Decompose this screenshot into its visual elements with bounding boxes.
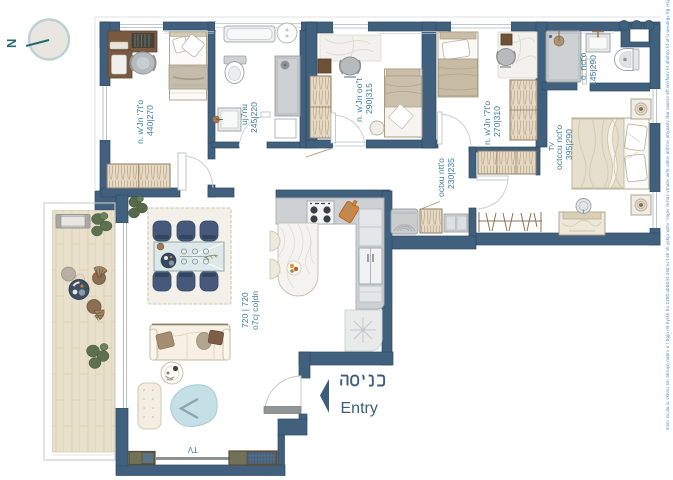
- svg-text:mxcr zu du,iu vkhnu`sm ahruyo: mxcr zu du,iu vkhnu`sm ahruyo nabrv u`l …: [665, 0, 670, 430]
- svg-text:n. w'Jn '7t'o: n. w'Jn '7t'o: [135, 100, 145, 144]
- svg-text:n. w'Jn '7t'o: n. w'Jn '7t'o: [482, 101, 492, 145]
- svg-text:245|220: 245|220: [249, 102, 259, 133]
- svg-text:n. w'Jn oo"t: n. w'Jn oo"t: [354, 78, 364, 122]
- svg-text:uj7nu: uj7nu: [239, 104, 249, 125]
- svg-text:440|270: 440|270: [145, 105, 155, 136]
- svg-text:o7cj co|dn: o7cj co|dn: [250, 291, 260, 330]
- svg-text:TV: TV: [187, 445, 198, 454]
- svg-text:N: N: [4, 39, 19, 48]
- svg-text:o. nct'o: o. nct'o: [578, 52, 588, 80]
- svg-text:Entry: Entry: [341, 400, 378, 417]
- svg-text:octxu ntt'o: octxu ntt'o: [436, 158, 446, 197]
- svg-text:290|315: 290|315: [364, 83, 374, 114]
- svg-text:395|290: 395|290: [564, 129, 574, 160]
- svg-text:145|290: 145|290: [588, 55, 598, 86]
- svg-text:720 | 720: 720 | 720: [240, 292, 250, 328]
- svg-text:270|310: 270|310: [492, 106, 502, 137]
- svg-text:TV: TV: [549, 142, 556, 151]
- svg-text:230|235: 230|235: [446, 158, 456, 189]
